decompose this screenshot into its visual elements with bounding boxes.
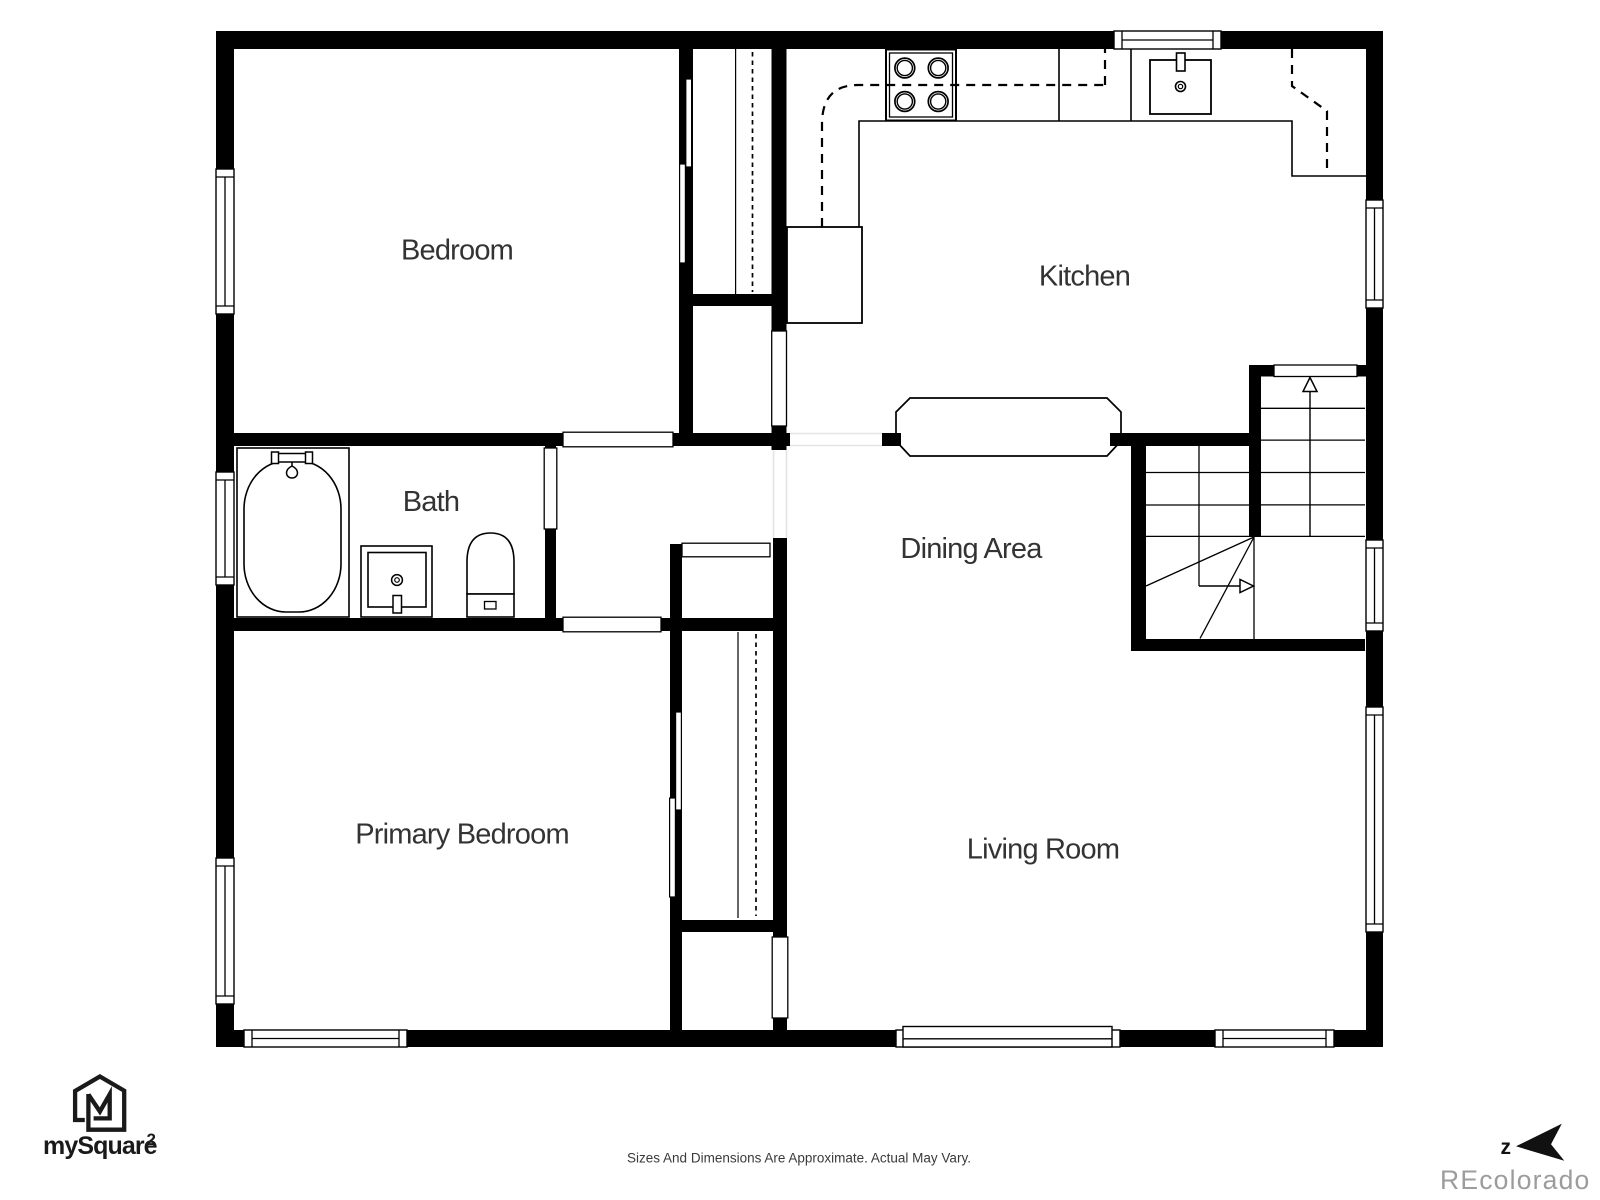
svg-text:mySquare: mySquare	[43, 1132, 158, 1160]
svg-text:z: z	[1501, 1136, 1512, 1159]
svg-text:Living Room: Living Room	[967, 834, 1119, 866]
svg-text:2: 2	[147, 1130, 156, 1149]
svg-text:Bath: Bath	[403, 486, 459, 518]
svg-text:Bedroom: Bedroom	[401, 235, 513, 267]
svg-text:Dining Area: Dining Area	[900, 533, 1043, 565]
svg-text:Kitchen: Kitchen	[1039, 261, 1130, 293]
svg-text:REcolorado: REcolorado	[1440, 1165, 1590, 1195]
svg-text:Sizes And Dimensions Are Appro: Sizes And Dimensions Are Approximate. Ac…	[627, 1151, 971, 1166]
svg-text:Primary Bedroom: Primary Bedroom	[355, 819, 569, 851]
